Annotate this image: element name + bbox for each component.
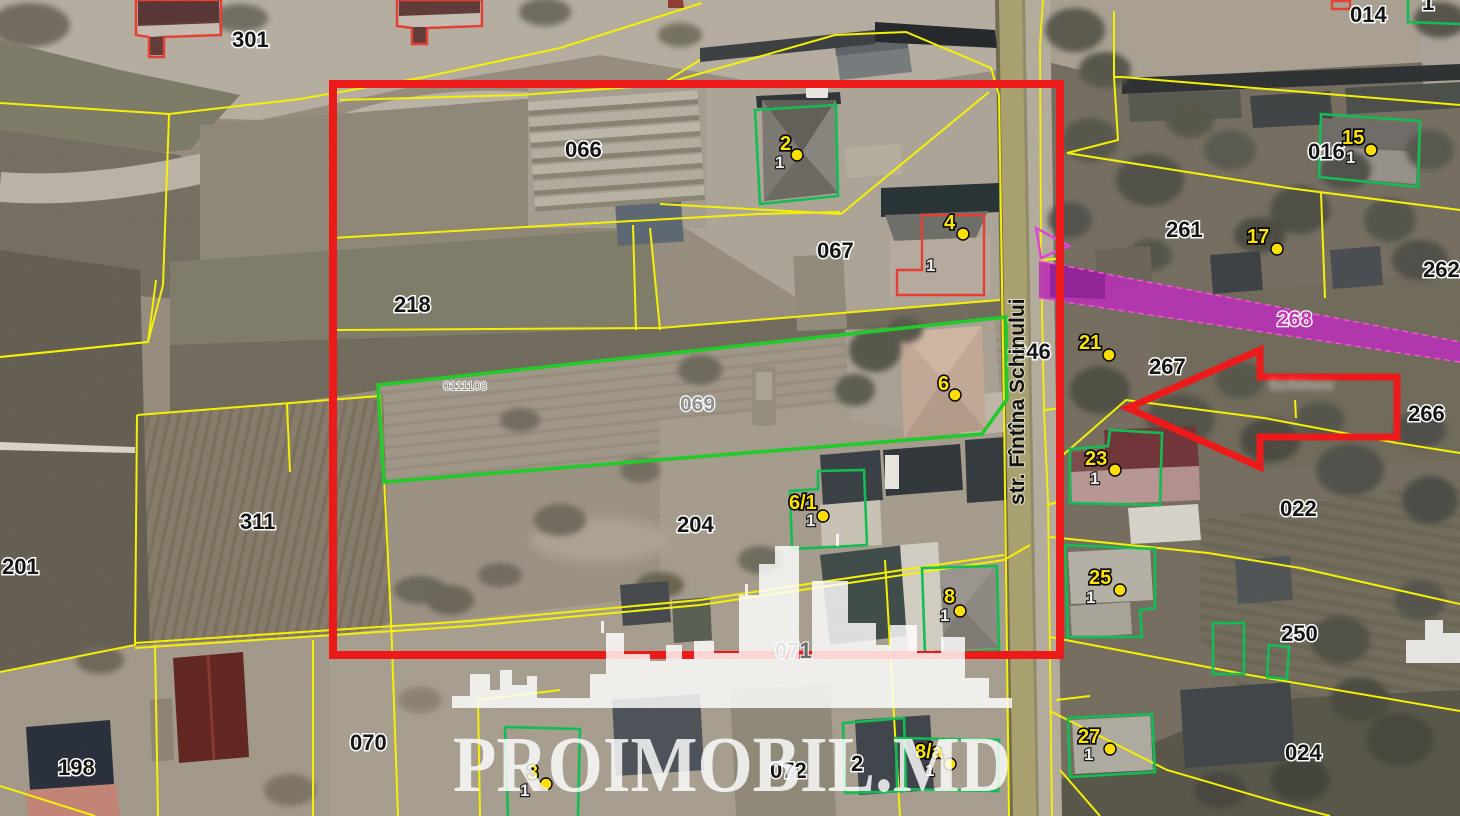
svg-text:1: 1 xyxy=(806,511,815,530)
svg-text:024: 024 xyxy=(1285,740,1322,765)
svg-text:1: 1 xyxy=(1090,469,1099,488)
svg-text:066: 066 xyxy=(565,137,602,162)
svg-text:23: 23 xyxy=(1085,448,1107,470)
svg-text:069: 069 xyxy=(680,393,715,416)
svg-text:204: 204 xyxy=(677,512,714,537)
svg-text:Schinov: Schinov xyxy=(1268,375,1335,394)
svg-text:1: 1 xyxy=(1084,745,1093,764)
svg-text:311: 311 xyxy=(240,509,276,534)
svg-text:1: 1 xyxy=(1422,0,1434,15)
svg-text:0111108: 0111108 xyxy=(443,379,487,393)
svg-text:1: 1 xyxy=(940,606,949,625)
svg-text:15: 15 xyxy=(1342,127,1364,149)
svg-text:266: 266 xyxy=(1408,401,1445,426)
svg-text:1: 1 xyxy=(1086,588,1095,607)
svg-text:25: 25 xyxy=(1089,567,1111,589)
svg-text:1: 1 xyxy=(926,256,935,275)
svg-text:str. Fîntîna Schinului: str. Fîntîna Schinului xyxy=(1006,298,1029,505)
svg-text:4: 4 xyxy=(944,212,956,234)
svg-text:201: 201 xyxy=(2,554,39,579)
svg-text:8: 8 xyxy=(944,586,955,608)
svg-text:PROIMOBIL.MD: PROIMOBIL.MD xyxy=(453,722,1011,809)
svg-text:016: 016 xyxy=(1308,139,1345,164)
svg-text:250: 250 xyxy=(1281,621,1318,646)
svg-text:21: 21 xyxy=(1079,332,1101,354)
svg-text:014: 014 xyxy=(1350,2,1387,27)
svg-text:022: 022 xyxy=(1280,496,1317,521)
svg-text:1: 1 xyxy=(1346,148,1355,167)
svg-text:070: 070 xyxy=(350,730,387,755)
svg-text:1: 1 xyxy=(775,153,784,172)
svg-text:218: 218 xyxy=(394,292,431,317)
svg-text:198: 198 xyxy=(58,755,95,780)
svg-text:6: 6 xyxy=(938,373,949,395)
svg-text:17: 17 xyxy=(1247,226,1269,248)
svg-text:067: 067 xyxy=(817,238,854,263)
svg-text:267: 267 xyxy=(1149,354,1186,379)
svg-text:262: 262 xyxy=(1423,257,1460,282)
svg-text:261: 261 xyxy=(1166,217,1203,242)
svg-text:2: 2 xyxy=(780,133,791,155)
svg-text:301: 301 xyxy=(232,27,269,52)
svg-text:268: 268 xyxy=(1277,308,1312,331)
